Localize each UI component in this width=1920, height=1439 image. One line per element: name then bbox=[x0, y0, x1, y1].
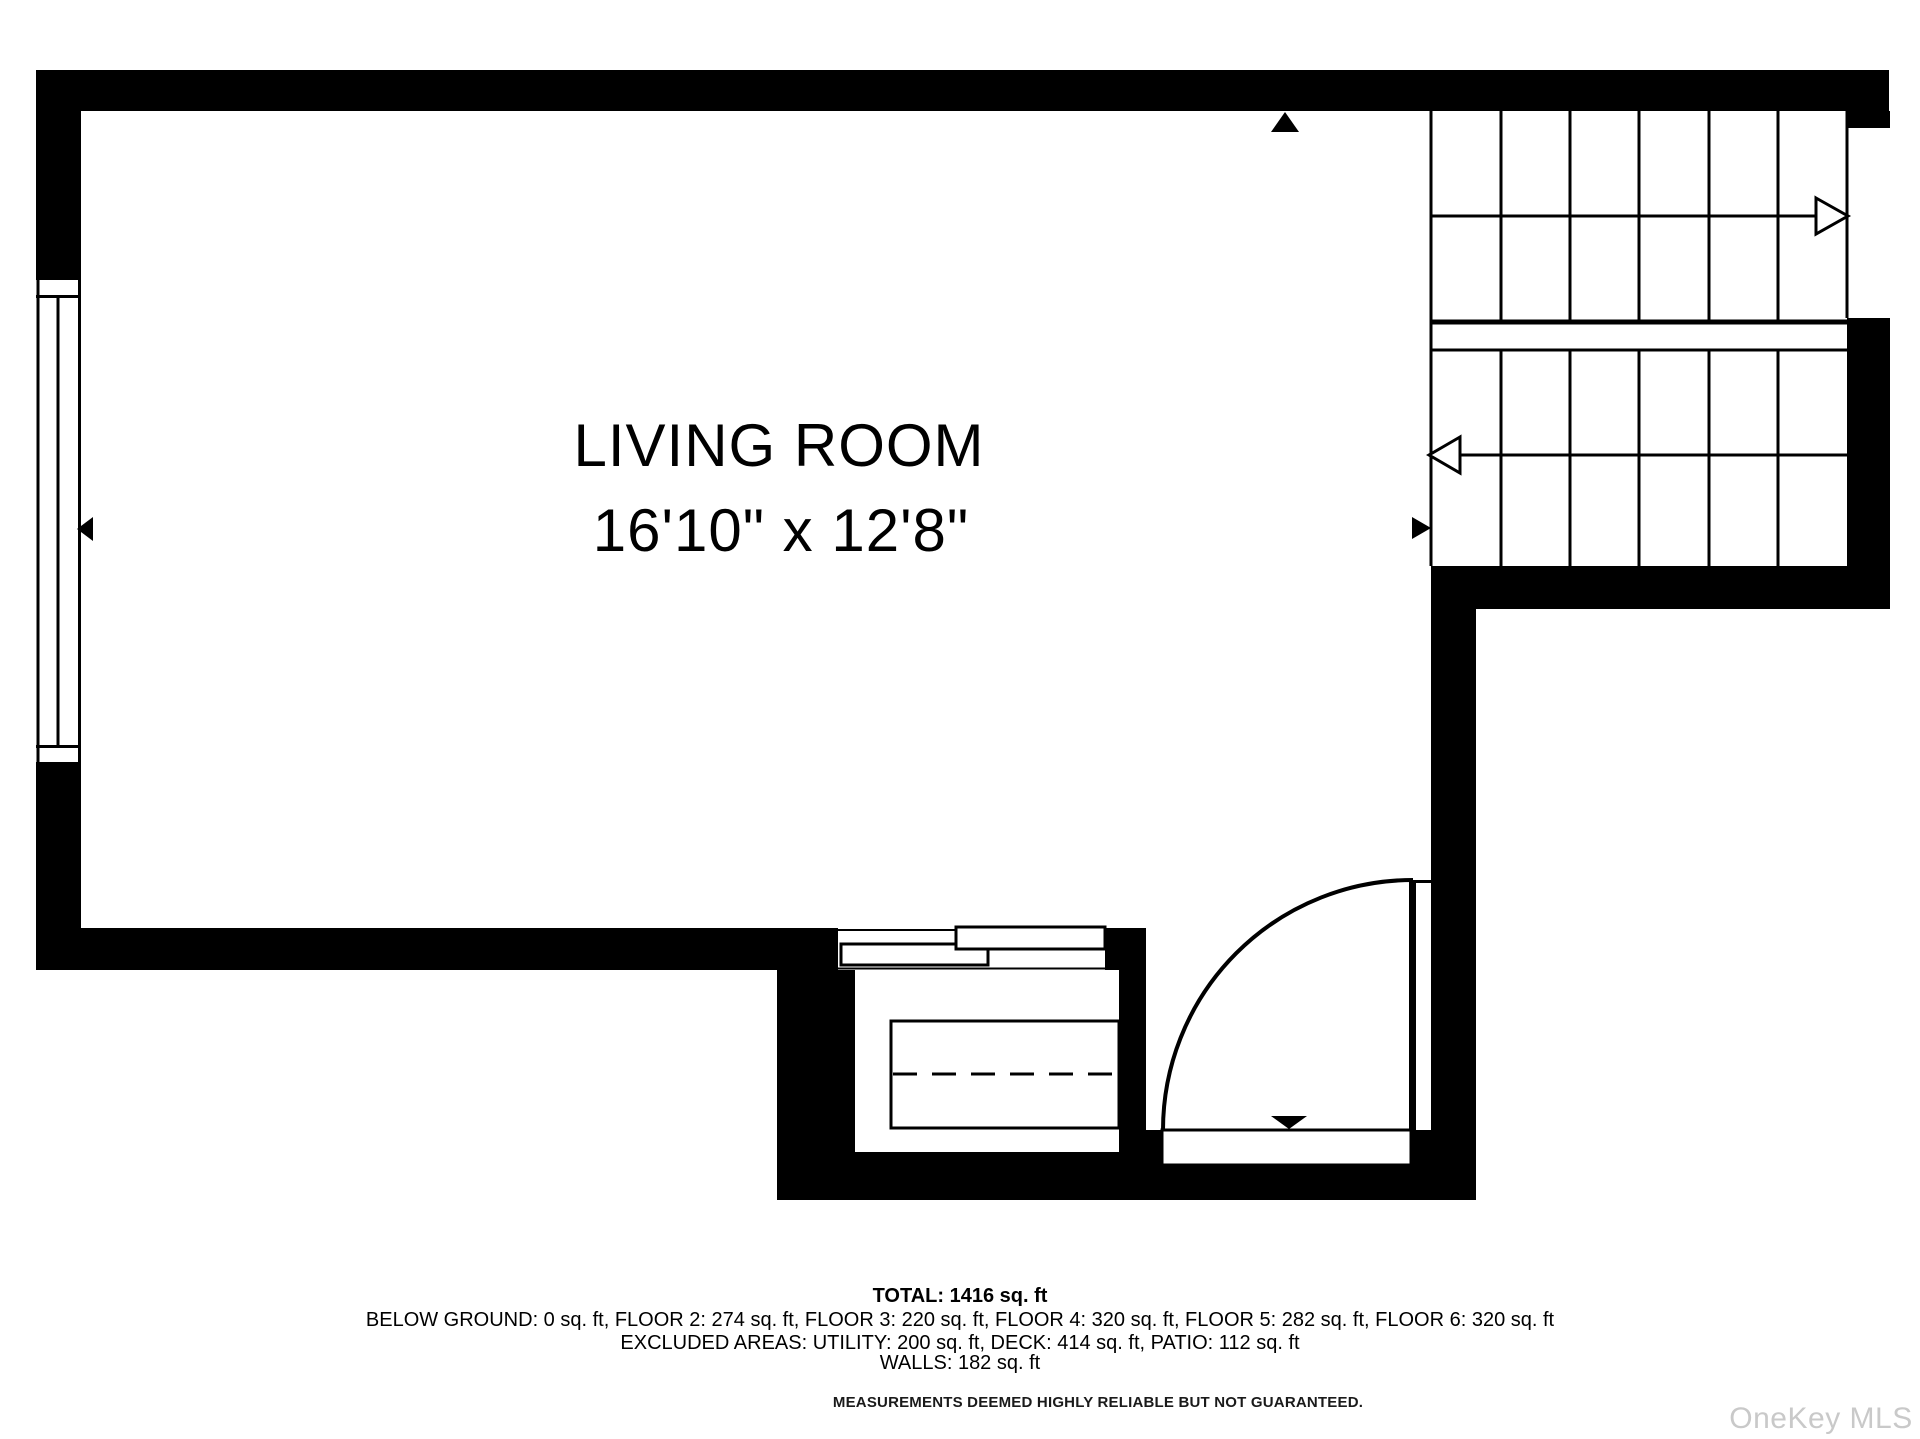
window bbox=[36, 277, 81, 765]
door-leaf bbox=[1409, 880, 1416, 1130]
wall-under-stairs bbox=[1431, 566, 1890, 609]
markers bbox=[77, 112, 1431, 1129]
summary-floors-line: BELOW GROUND: 0 sq. ft, FLOOR 2: 274 sq.… bbox=[0, 1309, 1920, 1331]
window-cap-top bbox=[36, 279, 81, 297]
wall-closet-right bbox=[1119, 948, 1146, 1152]
wall-closet-bottom bbox=[777, 1152, 1146, 1200]
closet-shelf-outline bbox=[891, 1021, 1119, 1128]
wall-under-threshold bbox=[1162, 1165, 1411, 1200]
window-cap-bottom bbox=[36, 747, 81, 764]
wall-top-right-notch bbox=[1847, 111, 1890, 128]
floor-plan-svg bbox=[0, 0, 1920, 1439]
door-threshold-marker-triangle-icon bbox=[1271, 1116, 1307, 1129]
sliding-door-panel-right bbox=[956, 927, 1105, 949]
stair-treads-lower bbox=[1501, 350, 1778, 566]
summary-excluded-line: EXCLUDED AREAS: UTILITY: 200 sq. ft, DEC… bbox=[0, 1332, 1920, 1354]
closet bbox=[838, 927, 1119, 1128]
wall-left-upper bbox=[36, 111, 81, 277]
stair-up-arrow-head bbox=[1816, 198, 1848, 234]
top-wall-marker-triangle-icon bbox=[1271, 112, 1299, 132]
door-swing-arc-icon bbox=[1163, 880, 1413, 1130]
wall-bottom-left bbox=[36, 928, 838, 970]
disclaimer-text: MEASUREMENTS DEEMED HIGHLY RELIABLE BUT … bbox=[833, 1394, 1363, 1411]
room-dimensions-label: 16'10" x 12'8" bbox=[593, 498, 969, 564]
summary-total-line: TOTAL: 1416 sq. ft bbox=[0, 1285, 1920, 1307]
watermark-text: OneKey MLS bbox=[1729, 1402, 1912, 1436]
floor-plan-page: LIVING ROOM 16'10" x 12'8" TOTAL: 1416 s… bbox=[0, 0, 1920, 1439]
wall-stair-right bbox=[1847, 318, 1890, 609]
stair-entry-marker-triangle-icon bbox=[1412, 517, 1431, 539]
door-threshold bbox=[1162, 1130, 1411, 1165]
wall-top bbox=[36, 70, 1889, 111]
staircase bbox=[1429, 111, 1848, 566]
stair-down-arrow-head bbox=[1429, 437, 1460, 473]
room-name-label: LIVING ROOM bbox=[573, 413, 984, 479]
wall-living-right bbox=[1431, 569, 1476, 1200]
summary-walls-line: WALLS: 182 sq. ft bbox=[0, 1352, 1920, 1374]
